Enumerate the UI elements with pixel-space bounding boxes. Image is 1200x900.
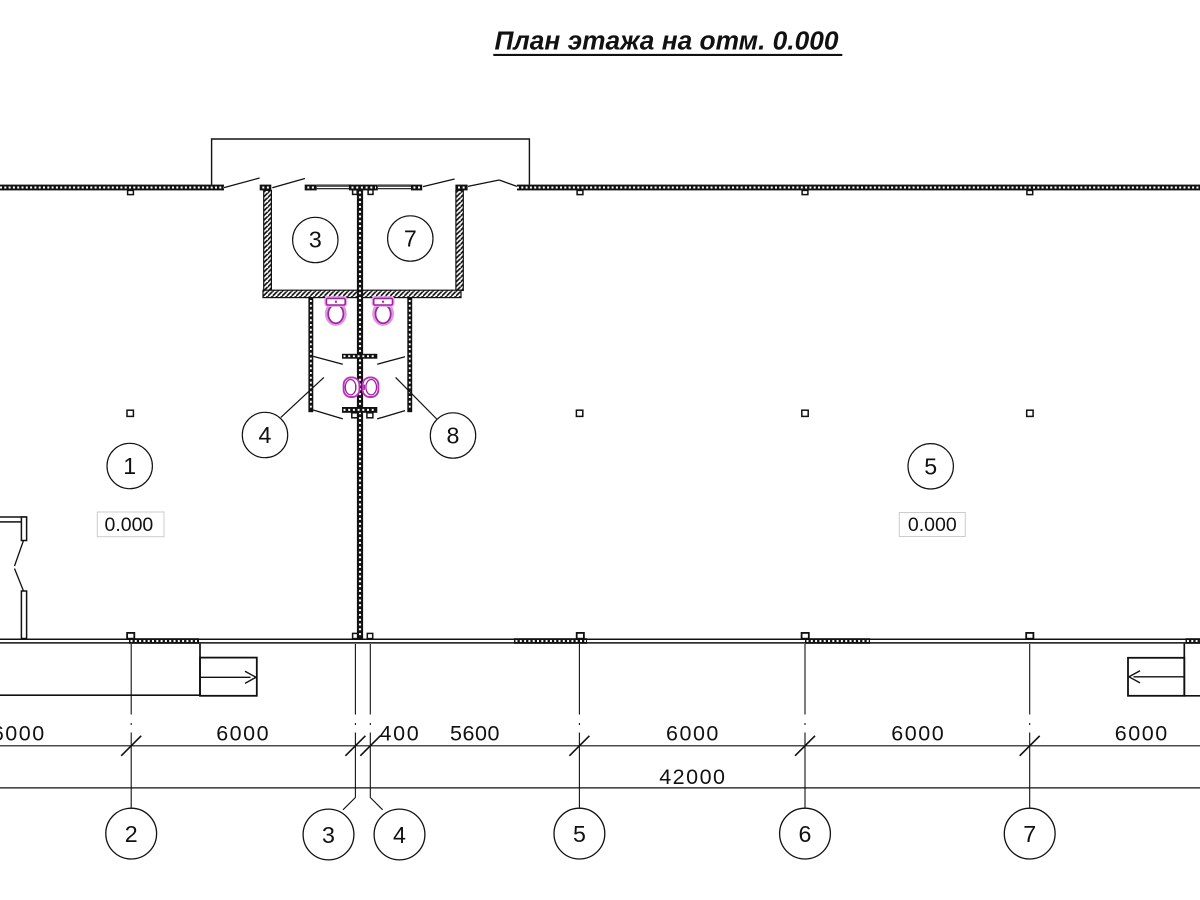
svg-text:2: 2 [125, 821, 138, 847]
svg-text:6000: 6000 [891, 722, 943, 746]
svg-text:42000: 42000 [659, 765, 725, 789]
svg-text:6000: 6000 [216, 722, 268, 746]
svg-text:1: 1 [123, 453, 136, 479]
svg-text:6000: 6000 [666, 722, 718, 746]
svg-text:6000: 6000 [1115, 722, 1167, 746]
svg-text:3: 3 [322, 822, 335, 848]
svg-text:400: 400 [379, 722, 418, 746]
svg-text:4: 4 [259, 422, 272, 448]
svg-text:8: 8 [447, 423, 460, 449]
svg-text:6: 6 [799, 821, 812, 847]
svg-text:3: 3 [309, 227, 322, 253]
svg-text:7: 7 [404, 226, 417, 252]
svg-text:5: 5 [573, 821, 586, 847]
svg-text:6000: 6000 [0, 722, 44, 746]
svg-text:5600: 5600 [450, 722, 500, 746]
svg-text:4: 4 [393, 822, 406, 848]
svg-text:5: 5 [924, 454, 937, 480]
svg-text:7: 7 [1023, 821, 1036, 847]
svg-text:План этажа на отм. 0.000: План этажа на отм. 0.000 [494, 26, 838, 56]
svg-text:0.000: 0.000 [908, 514, 957, 536]
svg-text:0.000: 0.000 [104, 514, 153, 536]
